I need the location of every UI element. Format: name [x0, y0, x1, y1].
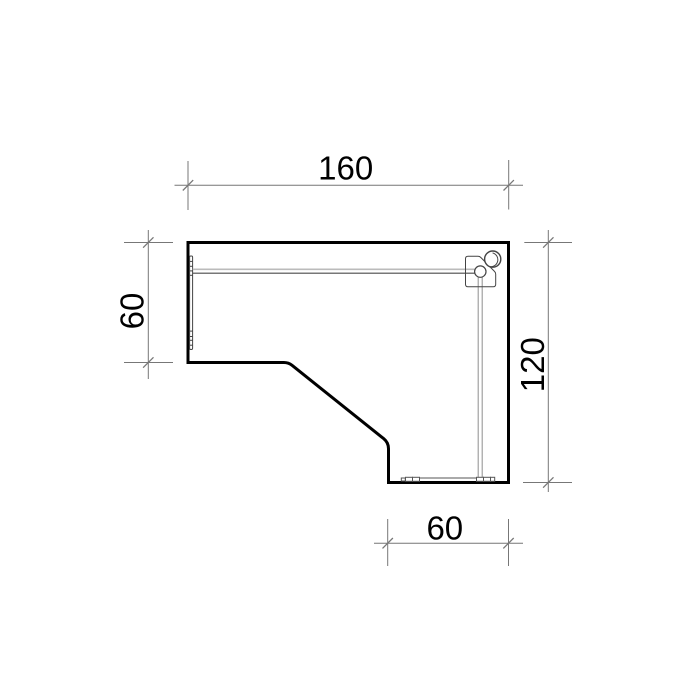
svg-text:160: 160 — [318, 150, 373, 187]
svg-text:60: 60 — [426, 509, 463, 546]
svg-text:120: 120 — [514, 337, 551, 392]
svg-text:60: 60 — [114, 293, 151, 330]
